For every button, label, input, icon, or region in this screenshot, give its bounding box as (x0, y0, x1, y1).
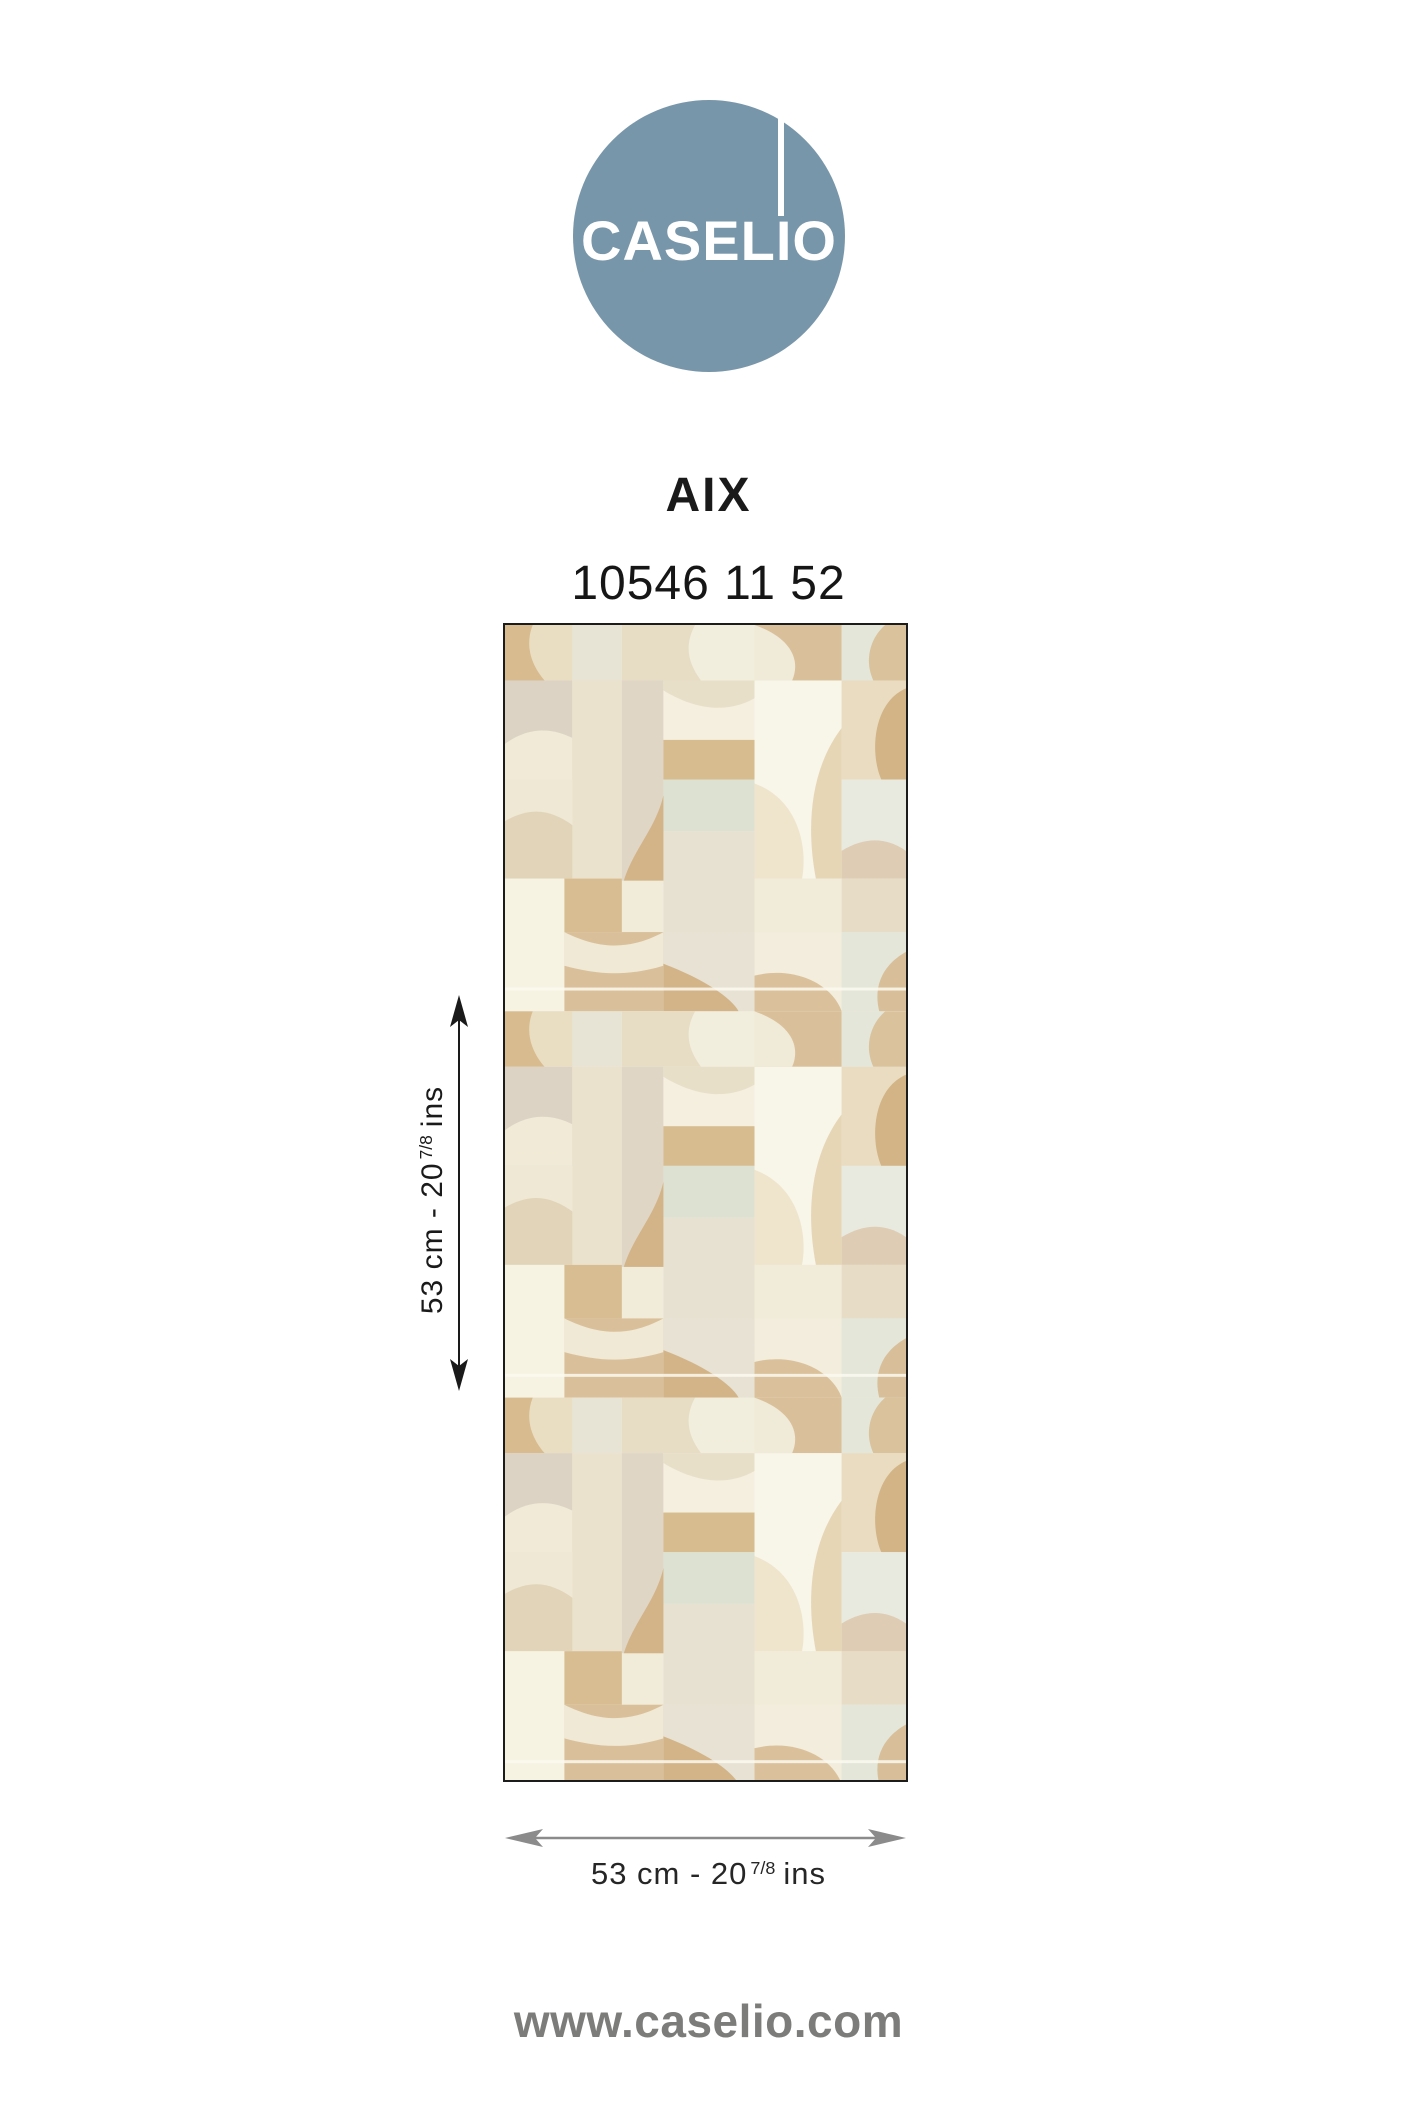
height-unit: ins (416, 1086, 449, 1127)
height-dimension-label: 53 cm - 207/8ins (416, 1086, 450, 1314)
vertical-double-arrow-icon (447, 993, 471, 1393)
logo-circle: CASELIO (573, 100, 845, 372)
product-reference: 10546 11 52 (0, 556, 1417, 611)
horizontal-double-arrow-icon (503, 1826, 908, 1850)
swatch-pattern (505, 625, 906, 1780)
collection-title: AIX (0, 468, 1417, 523)
website-url: www.caselio.com (0, 1994, 1417, 2048)
width-value: 53 cm - 20 (591, 1856, 747, 1891)
wallpaper-swatch (503, 623, 908, 1782)
logo-stem (778, 100, 784, 216)
height-fraction: 7/8 (416, 1135, 436, 1159)
spec-sheet-page: { "page": { "background": "#ffffff" }, "… (0, 0, 1417, 2126)
width-unit: ins (783, 1856, 826, 1891)
logo-wordmark: CASELIO (581, 209, 837, 272)
width-fraction: 7/8 (750, 1858, 775, 1878)
height-value: 53 cm - 20 (416, 1162, 449, 1314)
width-dimension-label: 53 cm - 207/8ins (0, 1856, 1417, 1892)
brand-logo: CASELIO (573, 100, 845, 372)
